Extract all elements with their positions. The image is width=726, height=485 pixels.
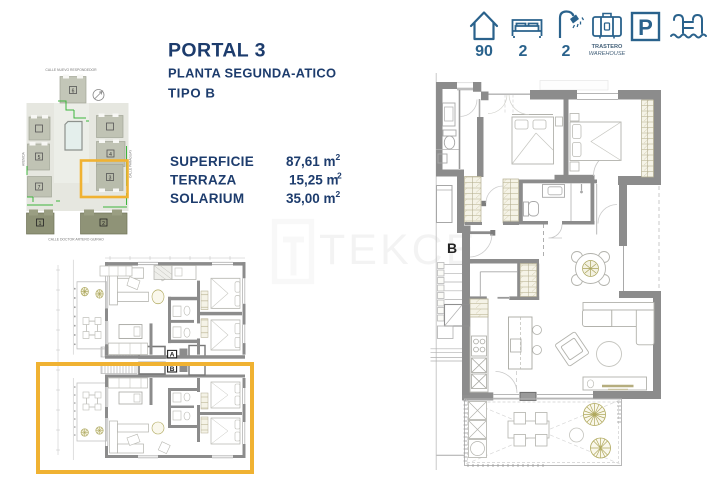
svg-text:TRASTERO: TRASTERO [592, 44, 623, 50]
svg-text:5: 5 [38, 155, 41, 161]
svg-text:6: 6 [72, 88, 75, 94]
svg-text:PLANTA SEGUNDA-ATICO: PLANTA SEGUNDA-ATICO [168, 66, 336, 81]
svg-text:87,61 m: 87,61 m [286, 154, 336, 169]
svg-text:35,00 m: 35,00 m [286, 191, 336, 206]
svg-text:2: 2 [336, 152, 341, 162]
svg-text:2: 2 [102, 221, 105, 227]
svg-text:AVENIDA: AVENIDA [22, 151, 26, 166]
svg-text:SUPERFICIE: SUPERFICIE [170, 154, 254, 169]
svg-text:PORTAL 3: PORTAL 3 [168, 40, 266, 62]
svg-text:B: B [170, 366, 175, 373]
svg-text:CALLE NUEVO RESPONDEDOR: CALLE NUEVO RESPONDEDOR [45, 68, 97, 72]
svg-text:2: 2 [337, 171, 342, 181]
svg-text:SOLARIUM: SOLARIUM [170, 191, 244, 206]
svg-text:B: B [447, 240, 457, 256]
svg-text:TIPO B: TIPO B [168, 86, 216, 101]
svg-text:CALLE DOCTOR ARTERO GUIRAO: CALLE DOCTOR ARTERO GUIRAO [48, 238, 104, 242]
svg-text:15,25 m: 15,25 m [289, 173, 339, 188]
svg-text:90: 90 [475, 43, 493, 60]
svg-text:A: A [170, 352, 175, 359]
svg-text:WAREHOUSE: WAREHOUSE [589, 51, 626, 57]
svg-text:3: 3 [109, 175, 112, 181]
svg-text:2: 2 [562, 43, 571, 60]
svg-text:4: 4 [109, 152, 112, 158]
svg-text:TERRAZA: TERRAZA [170, 173, 237, 188]
svg-text:2: 2 [336, 189, 341, 199]
svg-text:7: 7 [38, 185, 41, 191]
svg-text:1: 1 [39, 221, 42, 227]
svg-text:P: P [638, 15, 653, 40]
svg-text:CALLE PARAGUAY: CALLE PARAGUAY [129, 149, 133, 178]
svg-text:2: 2 [519, 43, 528, 60]
